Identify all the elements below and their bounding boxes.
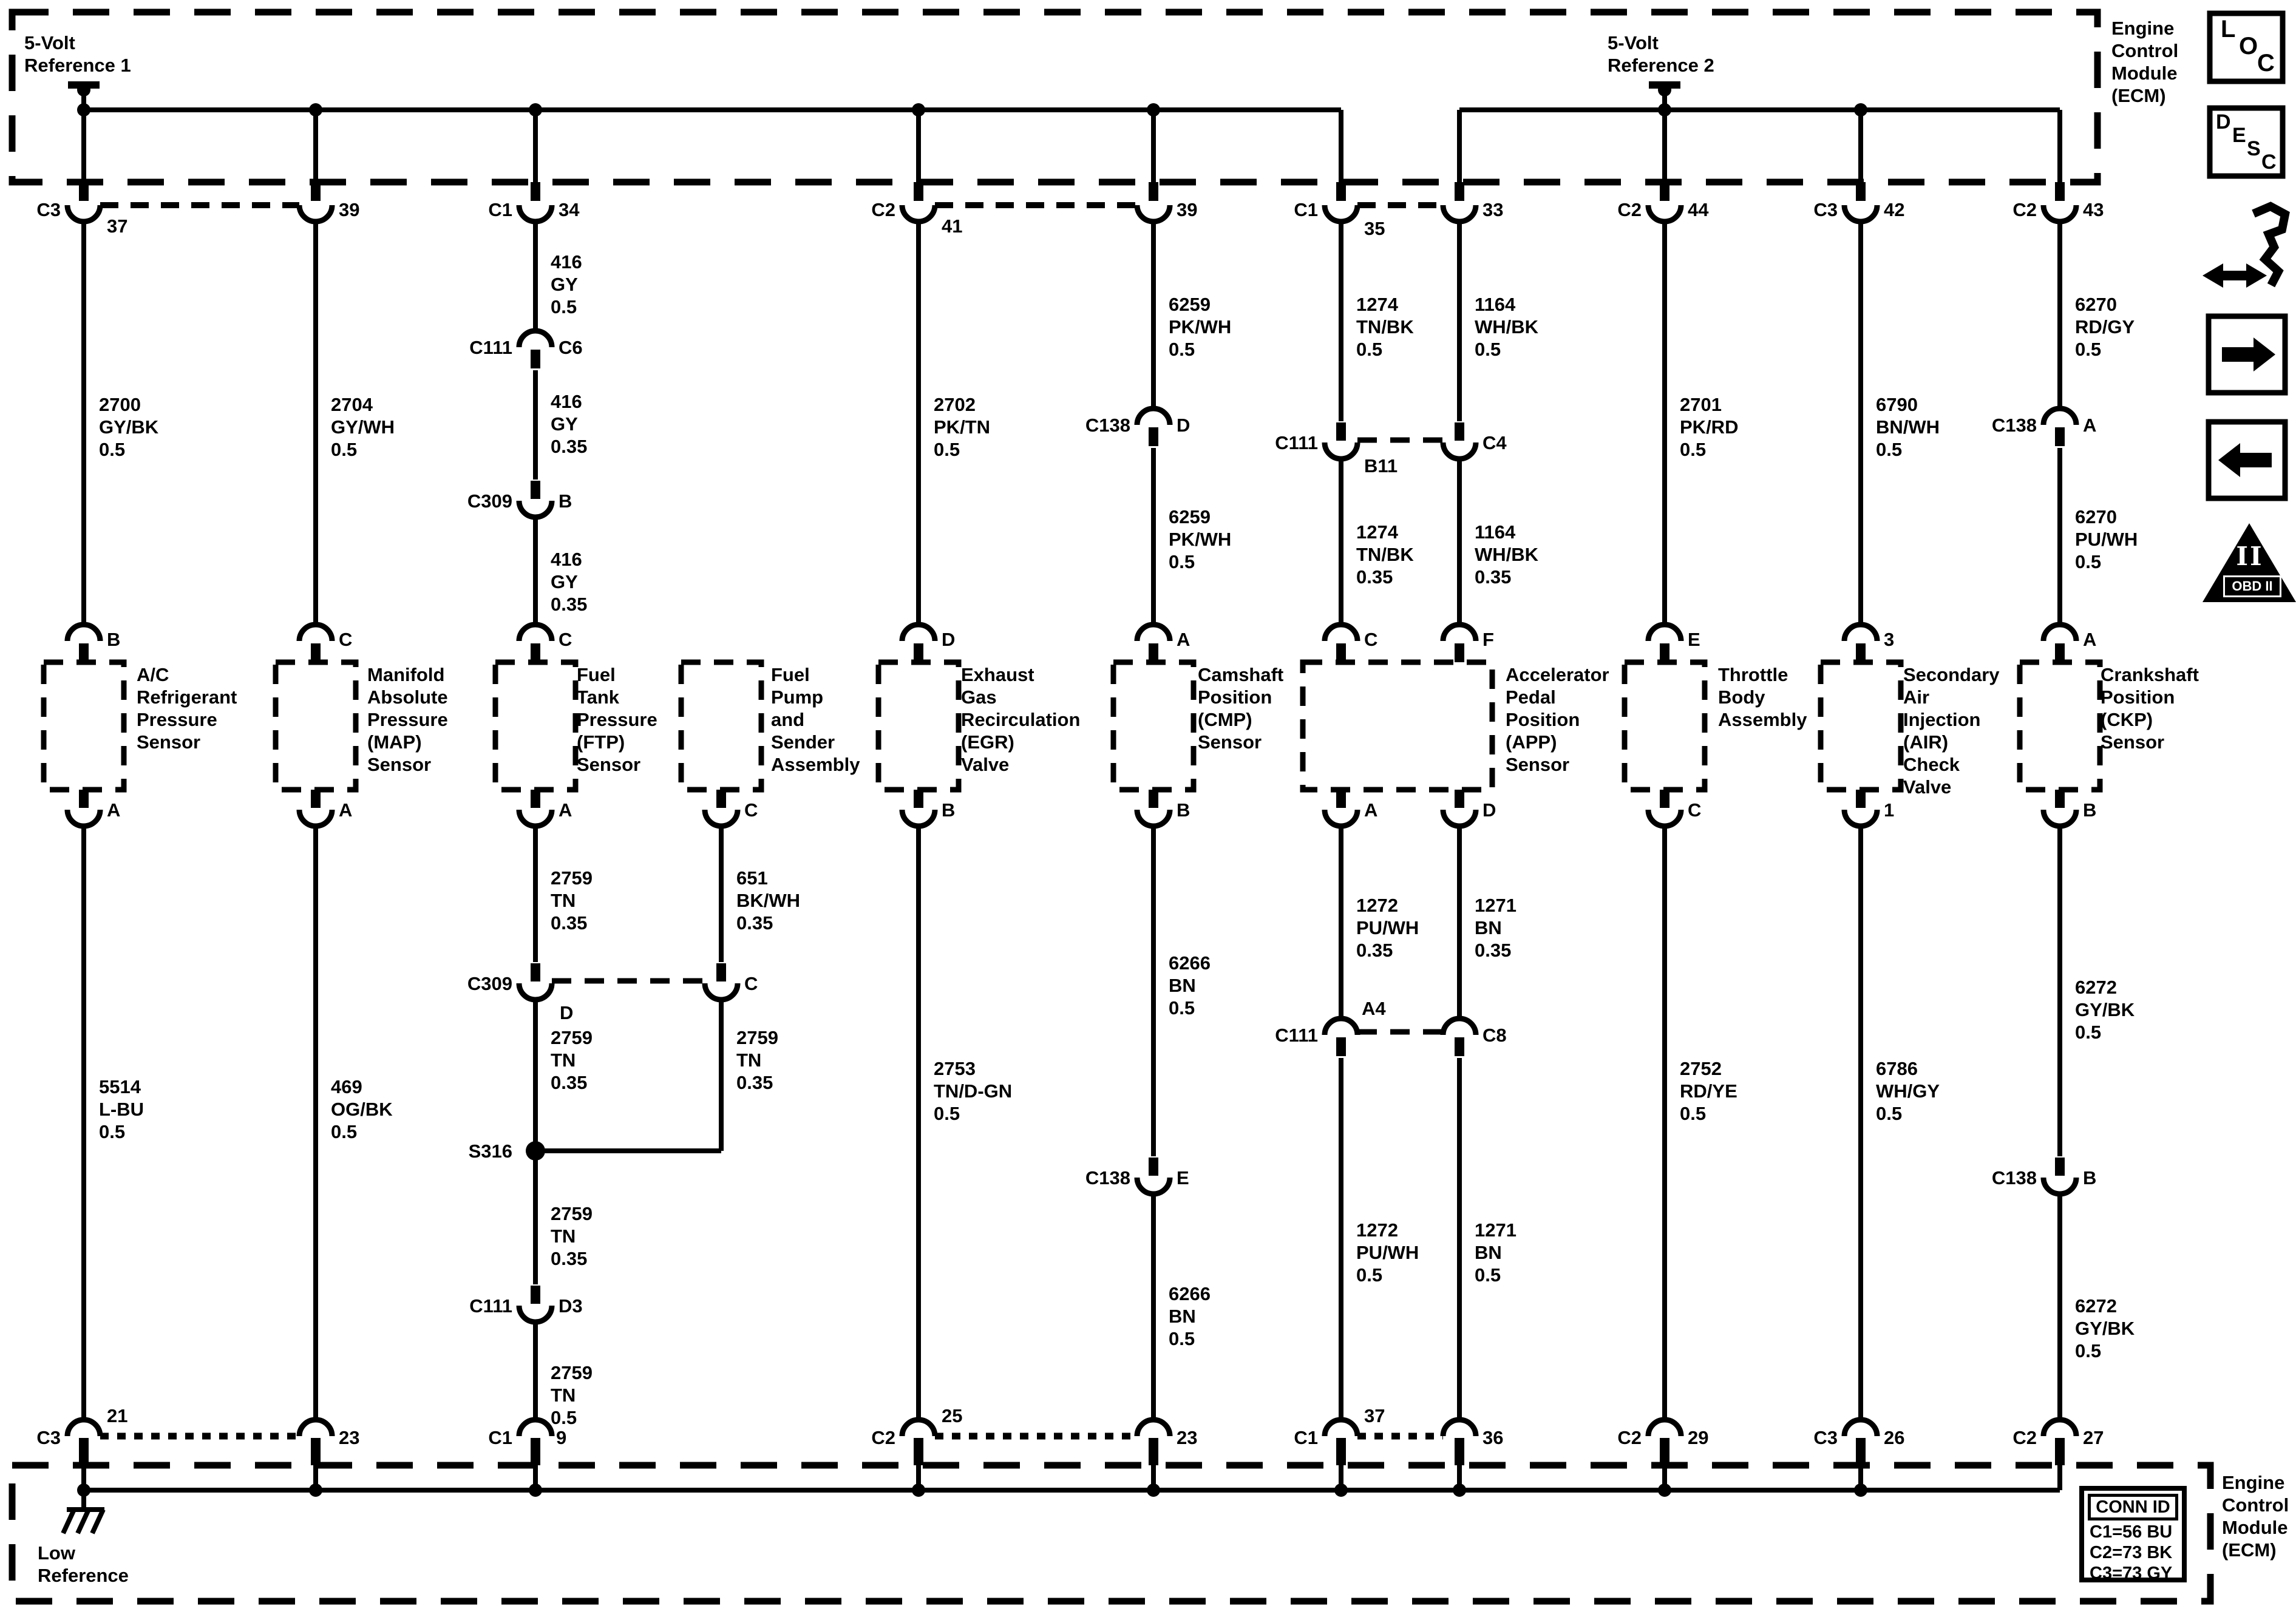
device-pin-letter: B <box>2083 799 2096 821</box>
wire-label: 6790 BN/WH 0.5 <box>1876 393 1940 461</box>
device-pin-letter: 1 <box>1884 799 1894 821</box>
inline-conn-name: C309 <box>446 972 512 995</box>
device-pin-letter: A <box>339 799 352 821</box>
bottom-pin-number: 9 <box>556 1426 566 1449</box>
device-name-map-sensor: Manifold Absolute Pressure (MAP) Sensor <box>367 663 448 776</box>
device-pin-letter: A <box>107 799 120 821</box>
inline-conn-name: C138 <box>1064 414 1130 436</box>
device-name-throttle-body: Throttle Body Assembly <box>1718 663 1807 731</box>
wire-label: 6270 PU/WH 0.5 <box>2075 506 2138 573</box>
desc-icon-letter[interactable]: C <box>2261 152 2277 172</box>
device-name-fuel-pump-sender: Fuel Pump and Sender Assembly <box>771 663 860 776</box>
inline-conn-name: C138 <box>1064 1167 1130 1189</box>
wire-label: 2759 TN 0.35 <box>551 867 593 934</box>
wiring-diagram-canvas: 5-Volt Reference 1 5-Volt Reference 2 En… <box>0 0 2296 1617</box>
top-pin-number: 39 <box>339 198 359 221</box>
ecm-bottom-pin-connectors <box>67 1420 2076 1465</box>
device-pin-letter: F <box>1483 628 1494 651</box>
wire-label: 6270 RD/GY 0.5 <box>2075 293 2135 361</box>
bottom-pin-conn: C2 <box>1587 1426 1642 1449</box>
ground-symbol <box>63 1510 104 1533</box>
wire-label: 2759 TN 0.35 <box>551 1026 593 1094</box>
bottom-pin-conn: C3 <box>6 1426 61 1449</box>
obd2-glyph: II <box>2234 542 2266 571</box>
device-pin-letter: C <box>1688 799 1701 821</box>
bottom-pin-conn: C2 <box>841 1426 895 1449</box>
top-pin-conn: C2 <box>1982 198 2037 221</box>
device-pin-letter: B <box>1177 799 1190 821</box>
inline-conn-name: C309 <box>446 490 512 512</box>
top-pin-conn: C1 <box>1263 198 1318 221</box>
wire-label: 6272 GY/BK 0.5 <box>2075 1295 2135 1362</box>
device-pin-letter: C <box>744 799 758 821</box>
wire-label: 1271 BN 0.35 <box>1475 894 1517 961</box>
arrow-left-icon <box>2209 422 2285 498</box>
wire-label: 1274 TN/BK 0.35 <box>1356 521 1414 588</box>
conn-id-row: C1=56 BU <box>2090 1522 2182 1542</box>
inline-conn-pin: D3 <box>559 1295 583 1317</box>
device-pin-letter: A <box>1177 628 1190 651</box>
device-name-ckp-sensor: Crankshaft Position (CKP) Sensor <box>2101 663 2199 753</box>
wire-label: 416 GY 0.35 <box>551 548 587 615</box>
device-pin-letter: B <box>942 799 955 821</box>
inline-conn-pin: B11 <box>1364 455 1398 477</box>
wire-label: 2759 TN 0.35 <box>736 1026 778 1094</box>
inline-conn-pin: C4 <box>1483 432 1507 454</box>
inline-conn-name: C111 <box>446 336 512 359</box>
device-pin-letter: C <box>1364 628 1377 651</box>
inline-conn-name: C111 <box>1251 1024 1318 1046</box>
loc-icon-letter[interactable]: L <box>2221 17 2235 41</box>
bottom-pin-number: 36 <box>1483 1426 1503 1449</box>
device-name-app-sensor: Accelerator Pedal Position (APP) Sensor <box>1506 663 1609 776</box>
obd2-label: OBD II <box>2223 575 2281 597</box>
wire-label: 2752 RD/YE 0.5 <box>1680 1057 1737 1125</box>
icon-graphics <box>2203 13 2296 602</box>
wire-label: 1272 PU/WH 0.35 <box>1356 894 1419 961</box>
five-volt-reference-2-label: 5-Volt Reference 2 <box>1608 32 1714 76</box>
ecm-bottom-label: Engine Control Module (ECM) <box>2222 1471 2289 1561</box>
ecm-top-box <box>12 12 2097 182</box>
device-pin-letter: A <box>1364 799 1377 821</box>
top-pin-number: 39 <box>1177 198 1197 221</box>
bottom-pin-conn: C3 <box>1783 1426 1838 1449</box>
low-reference-bus <box>63 1483 2060 1533</box>
splice-s316-dot <box>526 1141 545 1161</box>
device-pin-letter: A <box>559 799 572 821</box>
wire-label: 6266 BN 0.5 <box>1169 1283 1211 1350</box>
circuit-wires <box>84 110 2060 1510</box>
inline-conn-pin: D <box>1177 414 1190 436</box>
bottom-pin-conn: C1 <box>458 1426 512 1449</box>
bottom-pin-conn: C1 <box>1263 1426 1318 1449</box>
device-pin-letter: D <box>1483 799 1496 821</box>
device-pin-letter: E <box>1688 628 1700 651</box>
inline-conn-name: C138 <box>1970 414 2037 436</box>
wire-label: 6266 BN 0.5 <box>1169 952 1211 1019</box>
inline-conn-pin: C <box>744 972 758 995</box>
device-pin-letter: A <box>2083 628 2096 651</box>
wire-label: 2700 GY/BK 0.5 <box>99 393 158 461</box>
device-pin-letter: D <box>942 628 955 651</box>
inline-conn-pin: D <box>560 1002 573 1024</box>
wire-label: 416 GY 0.5 <box>551 251 582 318</box>
arrow-right-icon <box>2209 316 2285 393</box>
inline-conn-pin: A <box>2083 414 2096 436</box>
bottom-pin-number: 29 <box>1688 1426 1708 1449</box>
bottom-pin-number: 27 <box>2083 1426 2104 1449</box>
loc-icon-letter[interactable]: C <box>2257 51 2275 75</box>
top-pin-conn: C2 <box>1587 198 1642 221</box>
device-pin-letter: C <box>559 628 572 651</box>
wire-label: 1274 TN/BK 0.5 <box>1356 293 1414 361</box>
device-pin-letter: 3 <box>1884 628 1894 651</box>
inline-conn-pin: E <box>1177 1167 1189 1189</box>
wire-label: 1164 WH/BK 0.35 <box>1475 521 1538 588</box>
low-reference-label: Low Reference <box>38 1542 129 1587</box>
desc-icon-letter[interactable]: E <box>2232 125 2246 146</box>
wire-label: 416 GY 0.35 <box>551 390 587 458</box>
wire-label: 6272 GY/BK 0.5 <box>2075 976 2135 1043</box>
bottom-pin-number: 37 <box>1364 1405 1385 1427</box>
wire-label: 2701 PK/RD 0.5 <box>1680 393 1738 461</box>
ecm-bottom-box <box>12 1465 2210 1601</box>
wire-label: 6259 PK/WH 0.5 <box>1169 506 1231 573</box>
inline-conn-pin: B <box>559 490 572 512</box>
top-pin-number: 35 <box>1364 217 1385 240</box>
top-pin-number: 33 <box>1483 198 1503 221</box>
bottom-pin-number: 23 <box>1177 1426 1197 1449</box>
top-pin-number: 44 <box>1688 198 1708 221</box>
conn-id-row: C2=73 BK <box>2090 1542 2182 1563</box>
wire-label: 5514 L-BU 0.5 <box>99 1076 144 1143</box>
device-pin-letter: C <box>339 628 352 651</box>
desc-icon-letter[interactable]: S <box>2247 138 2261 159</box>
wire-label: 2759 TN 0.5 <box>551 1361 593 1429</box>
device-pin-letter: B <box>107 628 120 651</box>
conn-id-row: C3=73 GY <box>2090 1563 2182 1584</box>
wire-label: 651 BK/WH 0.35 <box>736 867 800 934</box>
wire-label: 2704 GY/WH 0.5 <box>331 393 395 461</box>
top-pin-number: 41 <box>942 215 962 237</box>
inline-conn-pin: C6 <box>559 336 583 359</box>
loc-icon-letter[interactable]: O <box>2239 34 2258 58</box>
wire-label: 1164 WH/BK 0.5 <box>1475 293 1538 361</box>
wire-label: 1271 BN 0.5 <box>1475 1219 1517 1286</box>
device-name-air-check-valve: Secondary Air Injection (AIR) Check Valv… <box>1903 663 2000 798</box>
conn-id-header: CONN ID <box>2088 1494 2178 1520</box>
top-pin-conn: C2 <box>841 198 895 221</box>
top-pin-conn: C1 <box>458 198 512 221</box>
inline-conn-name: C111 <box>446 1295 512 1317</box>
bottom-pin-number: 23 <box>339 1426 359 1449</box>
inline-conn-name: C138 <box>1970 1167 2037 1189</box>
wire-label: 1272 PU/WH 0.5 <box>1356 1219 1419 1286</box>
bottom-pin-number: 21 <box>107 1405 127 1427</box>
inline-connectors <box>519 331 2076 1322</box>
wire-label: 2702 PK/TN 0.5 <box>934 393 990 461</box>
top-pin-conn: C3 <box>6 198 61 221</box>
device-name-ftp-sensor: Fuel Tank Pressure (FTP) Sensor <box>577 663 657 776</box>
wire-label: 6786 WH/GY 0.5 <box>1876 1057 1940 1125</box>
top-pin-number: 42 <box>1884 198 1904 221</box>
device-name-egr-valve: Exhaust Gas Recirculation (EGR) Valve <box>961 663 1080 776</box>
wire-label: 2759 TN 0.35 <box>551 1202 593 1270</box>
service-route-icon <box>2203 206 2285 288</box>
wire-label: 469 OG/BK 0.5 <box>331 1076 393 1143</box>
conn-id-table: CONN ID C1=56 BU C2=73 BK C3=73 GY <box>2079 1486 2187 1582</box>
top-pin-number: 43 <box>2083 198 2104 221</box>
ecm-top-pin-connectors <box>67 182 2076 222</box>
bottom-pin-conn: C2 <box>1982 1426 2037 1449</box>
top-pin-conn: C3 <box>1783 198 1838 221</box>
inline-conn-pin: C8 <box>1483 1024 1507 1046</box>
ecm-top-label: Engine Control Module (ECM) <box>2111 17 2178 107</box>
five-volt-reference-buses <box>68 83 2060 117</box>
wire-label: 2753 TN/D-GN 0.5 <box>934 1057 1012 1125</box>
five-volt-reference-1-label: 5-Volt Reference 1 <box>24 32 131 76</box>
bottom-pin-number: 26 <box>1884 1426 1904 1449</box>
inline-conn-pin: B <box>2083 1167 2096 1189</box>
top-pin-number: 37 <box>107 215 127 237</box>
device-name-cmp-sensor: Camshaft Position (CMP) Sensor <box>1198 663 1283 753</box>
device-name-ac-refrigerant-pressure-sensor: A/C Refrigerant Pressure Sensor <box>137 663 237 753</box>
inline-conn-pin: A4 <box>1362 997 1386 1020</box>
wire-label: 6259 PK/WH 0.5 <box>1169 293 1231 361</box>
inline-conn-name: C111 <box>1251 432 1318 454</box>
splice-s316-label: S316 <box>458 1140 512 1162</box>
top-pin-number: 34 <box>559 198 579 221</box>
bottom-pin-number: 25 <box>942 1405 962 1427</box>
desc-icon-letter[interactable]: D <box>2216 112 2231 132</box>
